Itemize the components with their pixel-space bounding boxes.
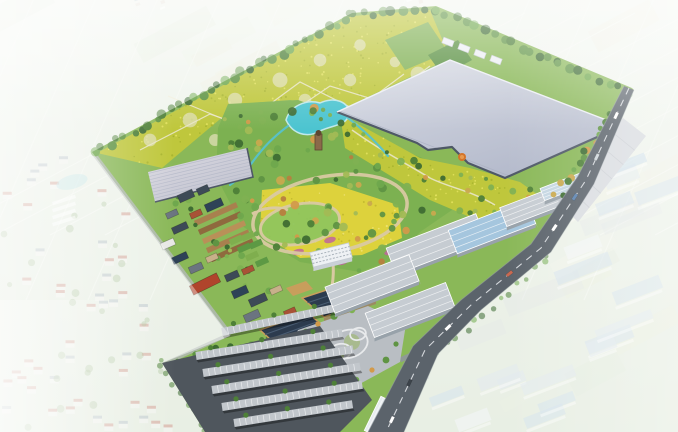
masterplan-aerial-view: [0, 0, 678, 432]
observation-tower: [315, 130, 322, 150]
aerial-rendering-svg: [0, 0, 678, 432]
